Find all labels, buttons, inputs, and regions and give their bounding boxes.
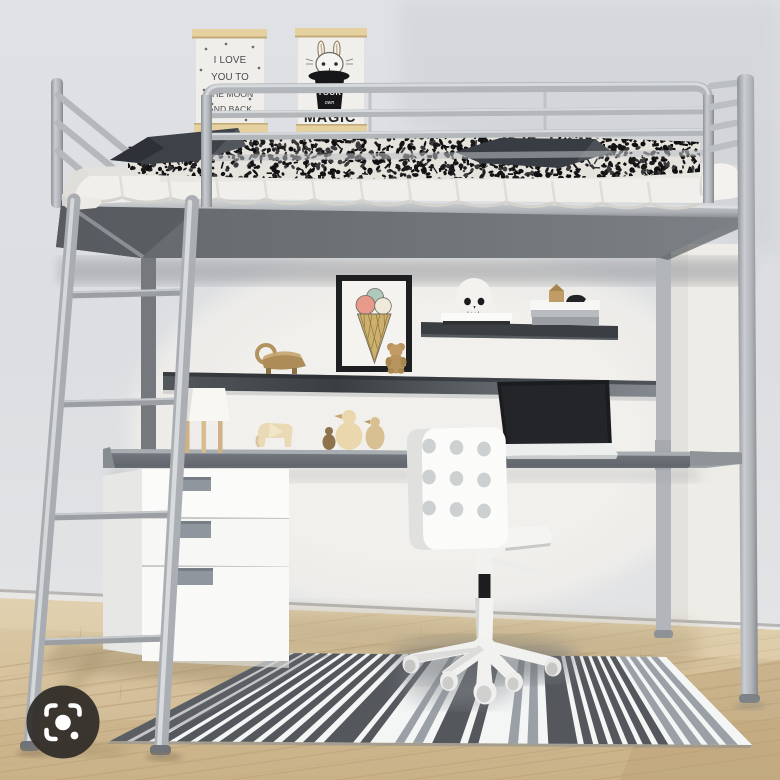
svg-text:own: own — [325, 100, 335, 106]
svg-text:YOU TO: YOU TO — [211, 72, 249, 83]
svg-text:I LOVE: I LOVE — [214, 55, 247, 66]
